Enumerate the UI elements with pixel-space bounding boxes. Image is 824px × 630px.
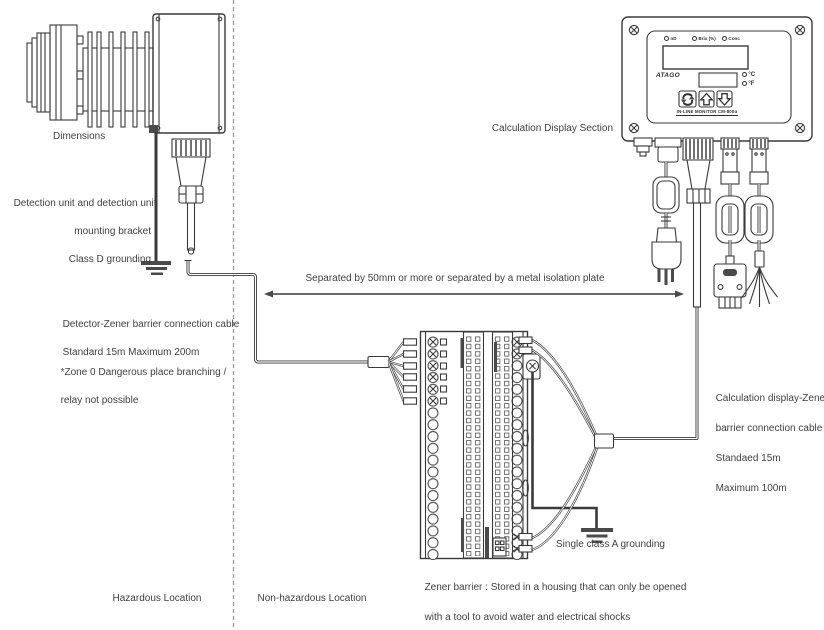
atago-logo: ATAGO [656,72,680,79]
cable-gland [172,139,210,254]
monitor-model-label: IN-LINE MONITOR CM-800α [676,109,738,116]
note-line: Zener barrier : Stored in a housing that… [425,582,687,593]
output-connector-leads [742,138,778,307]
note-line: Detection unit and detection unit [14,198,157,209]
calc-cable-note: Calculation display-Zener barrier connec… [710,376,824,496]
hazardous-location-label: Hazardous Location [107,592,207,606]
calc-display-section-label: Calculation Display Section [481,122,613,136]
led-dot-icon [664,36,669,41]
down-button[interactable] [717,91,732,107]
monitor-corner-screws [629,25,804,132]
note-line: *Zone 0 Dangerous place branching / [61,367,227,378]
zener-barrier-drawing [421,332,541,561]
temp-unit-label: °F [748,81,754,87]
power-cable-assembly [652,138,681,285]
dsub-connector [714,264,746,297]
single-grounding-label: Single class A grounding [556,538,665,552]
cable-sleeve [694,203,701,307]
probe-tip [189,248,194,254]
temp-unit-f: °F [742,81,754,87]
led-dot-icon [742,81,747,86]
note-line: with a tool to avoid water and electrica… [425,612,631,623]
temp-unit-label: °C [748,72,755,78]
cable-ferrule [368,357,389,368]
dimensions-label: Dimensions [53,130,105,144]
frayed-wires [742,267,778,307]
separation-label: Separated by 50mm or more or separated b… [288,272,622,286]
detector-wire-fan [389,339,417,404]
note-line: Standaed 15m [716,453,781,464]
monitor-drawing [622,17,812,308]
terminal-clamps [441,339,447,404]
separation-arrow [264,291,684,298]
heat-fins [88,32,149,127]
led-dot-icon [742,72,747,77]
power-plug [652,228,681,285]
led-brix: Brix (%) [692,36,716,41]
zener-bottom-connector [493,538,506,556]
note-line: barrier connection cable [716,423,823,434]
note-line: Class D grounding [69,254,151,265]
led-label: Conc [728,36,739,41]
led-dot-icon [692,36,697,41]
led-conc: Conc [722,36,740,41]
mode-button[interactable] [679,91,696,107]
led-nd: nD [664,36,677,41]
note-line: Maximum 100m [716,483,787,494]
non-hazardous-location-label: Non-hazardous Location [256,592,368,606]
led-dot-icon [722,36,727,41]
note-line: relay not possible [61,395,139,406]
signal-cable-gland [683,138,713,307]
temp-unit-c: °C [742,72,755,78]
ground-lug [149,125,158,133]
zone-note: *Zone 0 Dangerous place branching / rela… [55,352,226,408]
note-line: Calculation display-Zener [716,393,824,404]
led-label: Brix (%) [698,36,715,41]
secondary-display [699,73,737,87]
main-display [663,46,748,69]
zener-barrier-caption: Zener barrier : Stored in a housing that… [419,565,686,625]
cable-junction-ferrule [595,434,614,448]
up-button[interactable] [699,91,714,107]
note-line: mounting bracket [74,226,151,237]
led-label: nD [670,36,676,41]
output-connector-dsub [714,138,746,308]
installation-diagram: Dimensions Calculation Display Section D… [0,0,824,630]
aux-connector [634,138,652,156]
note-line: Detector-Zener barrier connection cable [63,319,240,330]
detection-grounding-note: Detection unit and detection unit mounti… [8,183,151,267]
